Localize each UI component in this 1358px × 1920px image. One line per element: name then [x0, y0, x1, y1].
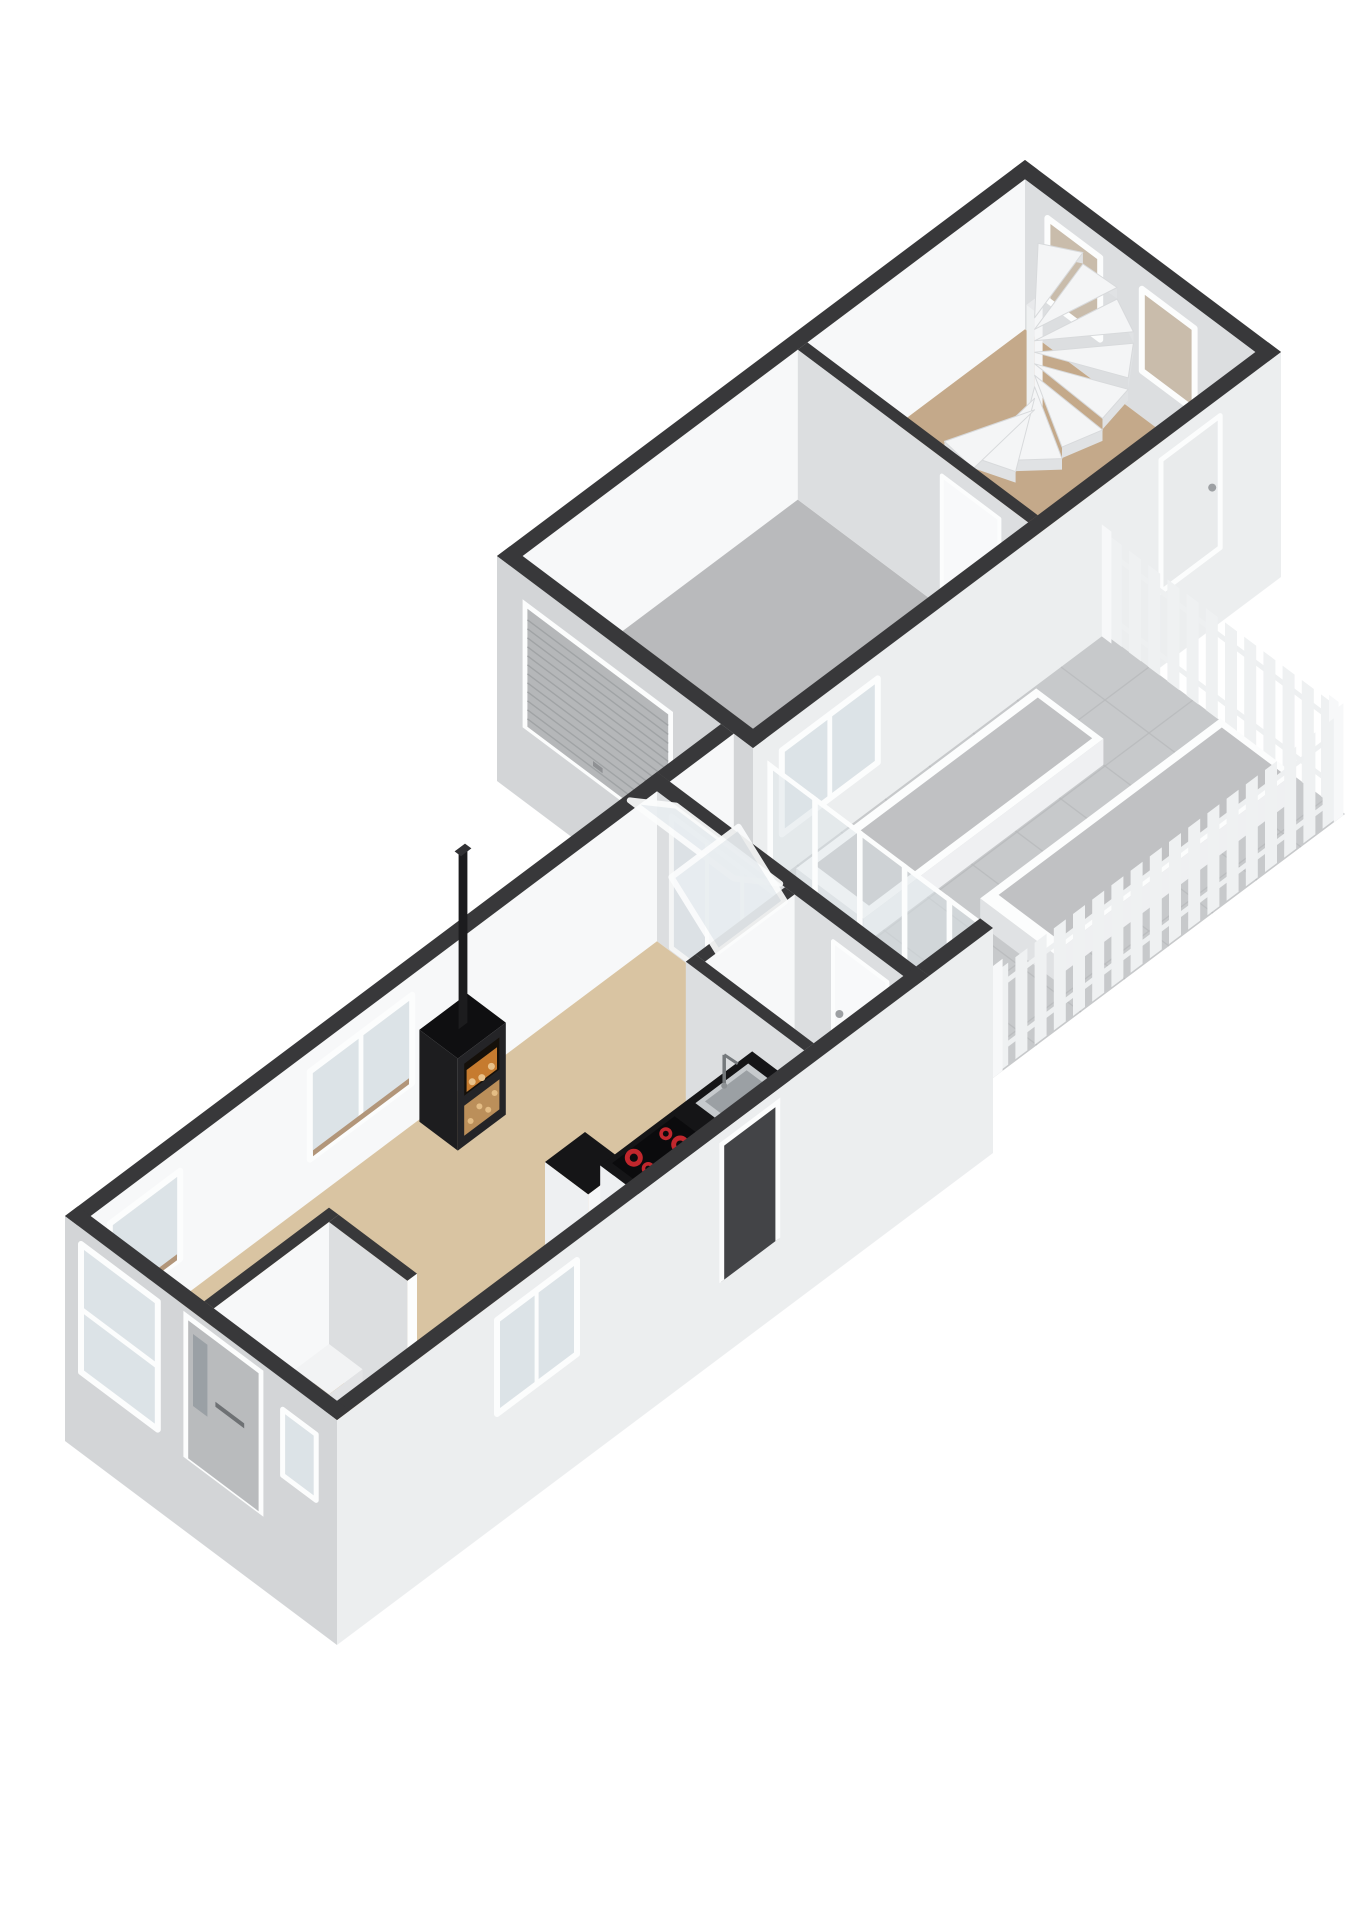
- stove-chimney: [459, 847, 468, 1030]
- stove-burning-log: [478, 1074, 485, 1081]
- patio-fence-ne-post: [1102, 524, 1112, 643]
- patio-fence-ne-slat: [1263, 651, 1275, 762]
- patio-fence-ne-slat: [1225, 622, 1237, 733]
- patio-fence-se-slat: [1188, 819, 1200, 930]
- house-window-nw-large-mullion: [359, 1033, 364, 1121]
- patio-fence-se-slat: [1111, 876, 1123, 987]
- patio-fence-se-slat: [1207, 804, 1219, 915]
- sink-faucet-base: [721, 1083, 727, 1089]
- patio-fence-ne-slat: [1206, 608, 1218, 719]
- cooktop-burner-center: [630, 1154, 638, 1162]
- patio-fence-se-slat: [1054, 919, 1066, 1030]
- patio-fence-se-slat: [1303, 732, 1315, 843]
- spiral-staircase-step-face: [1016, 459, 1062, 472]
- stove-log-end: [476, 1103, 482, 1109]
- stove-burning-log: [469, 1078, 476, 1085]
- stove-burning-log: [488, 1063, 495, 1070]
- patio-fence-se-post: [993, 959, 1003, 1078]
- patio-fence-se-slat: [1073, 905, 1085, 1016]
- house-window-se-mullion: [535, 1291, 539, 1384]
- patio-fence-se-slat: [1284, 747, 1296, 858]
- patio-fence-se-slat: [1169, 833, 1181, 944]
- house-se-doorway-jamb: [775, 1098, 780, 1242]
- front-door-glass: [193, 1334, 207, 1417]
- patio-fence-se-slat: [1246, 775, 1258, 886]
- patio-fence-se-slat: [1265, 761, 1277, 872]
- patio-fence-ne-slat: [1187, 594, 1199, 705]
- patio-fence-se-slat: [1035, 934, 1047, 1045]
- stair-hall-exterior-door-handle: [1208, 484, 1216, 492]
- patio-fence-ne-slat: [1167, 579, 1179, 690]
- patio-fence-ne-slat: [1244, 637, 1256, 748]
- garage-window-mullion: [827, 715, 832, 799]
- floorplan-3d-render-canvas: [0, 0, 1358, 1920]
- house-se-doorway-jamb: [719, 1140, 724, 1284]
- cooktop-burner-center: [663, 1131, 669, 1137]
- patio-fence-se-slat: [1323, 718, 1335, 829]
- stove-chimney-cap: [455, 844, 472, 857]
- corridor-south-wall: [929, 928, 993, 1201]
- stove-log-end: [492, 1090, 498, 1096]
- patio-fence-ne-slat: [1129, 550, 1141, 661]
- patio-fence-se-slat: [1227, 790, 1239, 901]
- stove-log-end: [468, 1118, 474, 1124]
- bathroom-door-handle: [835, 1010, 843, 1018]
- patio-fence-se-post: [1334, 703, 1344, 822]
- floorplan-3d-render: [0, 0, 1358, 1920]
- patio-fence-ne-slat: [1148, 565, 1160, 676]
- patio-fence-se-slat: [1015, 948, 1027, 1059]
- patio-fence-ne-slat: [1110, 536, 1122, 647]
- patio-fence-se-slat: [1131, 862, 1143, 973]
- patio-fence-se-slat: [1150, 847, 1162, 958]
- stove-log-end: [485, 1107, 491, 1113]
- patio-fence-se-slat: [1092, 891, 1104, 1002]
